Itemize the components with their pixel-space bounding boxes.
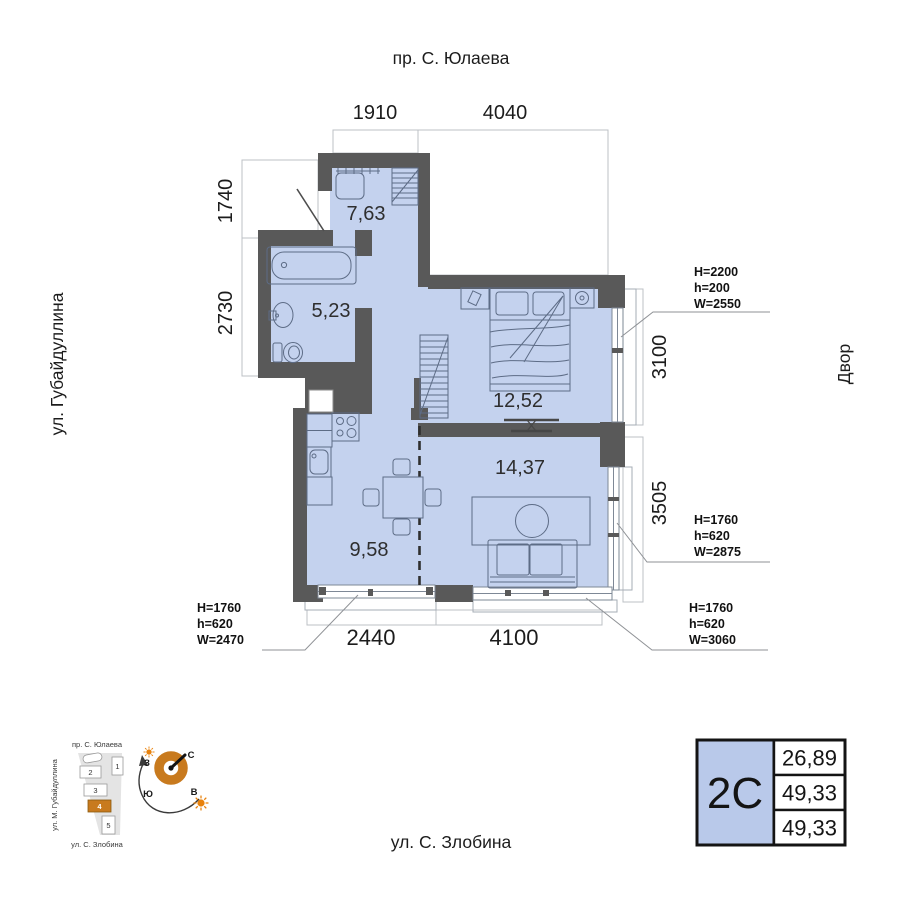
minimap-building-1-label: 1 (115, 762, 119, 771)
compass-east-label: В (191, 787, 198, 798)
area-value-1: 26,89 (782, 746, 837, 771)
spec-line: W=3060 (689, 633, 736, 647)
street-label-top: пр. С. Юлаева (393, 48, 510, 68)
dim-right-lower: 3505 (649, 481, 671, 526)
spec-line: h=620 (197, 617, 233, 631)
dim-bottom-left: 2440 (347, 625, 396, 650)
dim-right-upper: 3100 (649, 335, 671, 380)
compass-south-label: Ю (143, 789, 153, 800)
area-value-2: 49,33 (782, 781, 837, 806)
compass-center-dot (168, 765, 173, 770)
sun-icon-small (143, 746, 154, 757)
room-label-hallway: 7,63 (347, 203, 386, 225)
minimap-street-bottom: ул. С. Злобина (71, 840, 124, 849)
room-label-living: 14,37 (495, 457, 545, 479)
kitchen-window-bottom (318, 585, 435, 598)
bedroom-window (612, 308, 623, 422)
minimap-building-3-label: 3 (93, 786, 97, 795)
compass-west-label: З (144, 758, 150, 769)
floor-plan-canvas: 1910 4040 1740 2730 3100 3505 2440 4100 … (0, 0, 900, 900)
spec-line: h=620 (689, 617, 725, 631)
spec-line: h=620 (694, 529, 730, 543)
dim-bottom-right: 4100 (490, 625, 539, 650)
street-label-left: ул. Губайдуллина (47, 292, 67, 435)
dim-top-left: 1910 (353, 102, 398, 124)
room-label-bathroom: 5,23 (312, 300, 351, 322)
spec-line: W=2550 (694, 297, 741, 311)
room-label-kitchen: 9,58 (350, 539, 389, 561)
apartment-type-label: 2С (707, 769, 763, 818)
minimap-building-2-label: 2 (88, 768, 92, 777)
floor-plan-page: 1910 4040 1740 2730 3100 3505 2440 4100 … (0, 0, 900, 900)
spec-line: W=2875 (694, 545, 741, 559)
dim-left-upper: 1740 (215, 179, 237, 224)
sun-icon-large (194, 796, 209, 811)
spec-line: H=1760 (197, 601, 241, 615)
spec-line: W=2470 (197, 633, 244, 647)
minimap-street-top: пр. С. Юлаева (72, 740, 123, 749)
spec-line: H=1760 (694, 513, 738, 527)
area-value-3: 49,33 (782, 816, 837, 841)
minimap-street-left: ул. М. Губайдуллина (50, 758, 59, 830)
street-label-bottom: ул. С. Злобина (391, 832, 512, 852)
spec-line: h=200 (694, 281, 730, 295)
dim-top-right: 4040 (483, 102, 528, 124)
spec-line: H=1760 (689, 601, 733, 615)
living-window-bottom (473, 587, 612, 600)
compass-north-label: С (188, 750, 195, 761)
minimap-building-5-label: 5 (106, 821, 110, 830)
room-label-bedroom: 12,52 (493, 390, 543, 412)
living-window-right (608, 467, 619, 590)
ventilation-shaft (309, 390, 333, 412)
spec-line: H=2200 (694, 265, 738, 279)
info-card: 2С 26,89 49,33 49,33 (697, 740, 845, 845)
dim-left-lower: 2730 (215, 291, 237, 336)
street-label-right: Двор (834, 344, 854, 384)
